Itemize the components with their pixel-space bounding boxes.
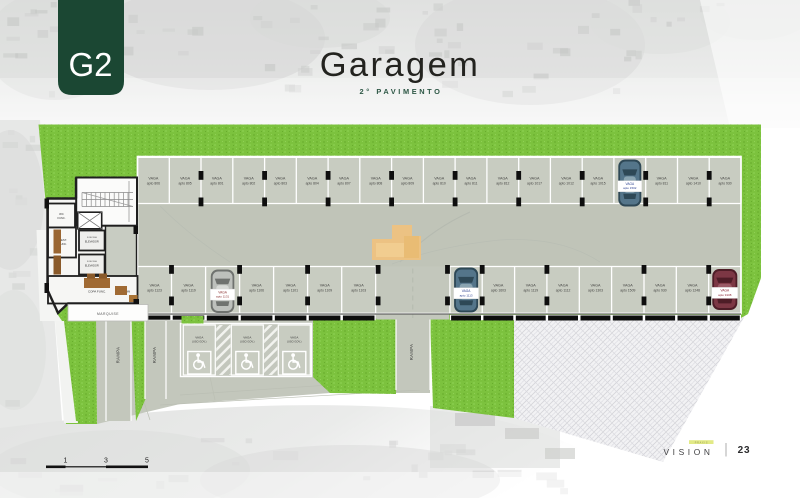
svg-text:RAMPA: RAMPA <box>152 347 157 364</box>
svg-text:apto 1012: apto 1012 <box>559 181 574 185</box>
svg-text:VAGA: VAGA <box>526 284 537 288</box>
svg-text:VAGA: VAGA <box>252 284 263 288</box>
svg-text:G2: G2 <box>68 46 112 83</box>
svg-text:apto 9108: apto 9108 <box>718 293 732 297</box>
svg-text:COPA FUNC.: COPA FUNC. <box>88 290 106 294</box>
svg-text:FUNC.: FUNC. <box>58 216 66 220</box>
svg-text:apto 1015: apto 1015 <box>591 181 606 185</box>
svg-text:apto 1103: apto 1103 <box>351 288 366 292</box>
svg-text:apto 801: apto 801 <box>210 181 223 185</box>
svg-text:VAGA: VAGA <box>623 284 634 288</box>
svg-text:5: 5 <box>145 458 149 465</box>
svg-text:VAGA: VAGA <box>591 284 602 288</box>
svg-text:VAGA: VAGA <box>275 177 286 181</box>
svg-text:VAGA: VAGA <box>212 177 223 181</box>
svg-text:3: 3 <box>104 458 108 465</box>
svg-text:apto 1106: apto 1106 <box>249 288 264 292</box>
svg-text:VAGA: VAGA <box>148 177 159 181</box>
svg-text:VAGA: VAGA <box>195 336 203 340</box>
svg-text:VAGA: VAGA <box>466 177 477 181</box>
svg-text:apto 804: apto 804 <box>306 181 319 185</box>
svg-text:VAGA: VAGA <box>307 177 318 181</box>
svg-text:apto 811: apto 811 <box>655 181 668 185</box>
svg-text:VAGA: VAGA <box>290 336 298 340</box>
svg-text:VAGA: VAGA <box>558 284 569 288</box>
svg-text:2° PAVIMENTO: 2° PAVIMENTO <box>359 87 442 96</box>
svg-text:apto 812: apto 812 <box>496 181 509 185</box>
svg-text:ELEVADOR: ELEVADOR <box>85 264 99 268</box>
svg-text:apto 1101: apto 1101 <box>283 288 298 292</box>
svg-text:VISION: VISION <box>664 447 714 457</box>
svg-text:VAGA: VAGA <box>530 177 541 181</box>
svg-text:apto 808: apto 808 <box>369 181 382 185</box>
svg-text:apto 1410: apto 1410 <box>686 181 701 185</box>
svg-text:apto 807: apto 807 <box>337 181 350 185</box>
svg-text:Garagem: Garagem <box>320 46 481 84</box>
svg-text:VAGA: VAGA <box>720 177 731 181</box>
svg-text:apto 1123: apto 1123 <box>147 288 162 292</box>
svg-text:SOB/CIMA: SOB/CIMA <box>87 236 97 239</box>
svg-text:MARQUISE: MARQUISE <box>97 312 119 316</box>
svg-text:VAGA: VAGA <box>180 177 191 181</box>
svg-text:apto 1119: apto 1119 <box>181 288 196 292</box>
svg-text:VAGA: VAGA <box>493 284 504 288</box>
svg-text:1: 1 <box>64 458 68 465</box>
svg-text:VAGA: VAGA <box>150 284 161 288</box>
svg-text:VAGA: VAGA <box>371 177 382 181</box>
svg-text:RAMPA: RAMPA <box>116 347 121 364</box>
svg-text:VAGA: VAGA <box>688 284 699 288</box>
svg-text:apto 805: apto 805 <box>178 181 191 185</box>
svg-text:apto 1112: apto 1112 <box>556 288 571 292</box>
svg-text:apto 1303: apto 1303 <box>588 288 603 292</box>
svg-text:VAGA: VAGA <box>655 284 666 288</box>
svg-text:apto 1248: apto 1248 <box>685 288 700 292</box>
svg-text:RAMPA: RAMPA <box>409 344 414 361</box>
svg-text:VAGA: VAGA <box>462 289 471 293</box>
svg-text:VAGA: VAGA <box>434 177 445 181</box>
svg-text:VAGA: VAGA <box>561 177 572 181</box>
svg-text:apto 806: apto 806 <box>147 181 160 185</box>
svg-text:VAGA: VAGA <box>657 177 668 181</box>
svg-text:VAGA: VAGA <box>498 177 509 181</box>
svg-text:VAGA: VAGA <box>354 284 365 288</box>
svg-text:VAGA: VAGA <box>688 177 699 181</box>
svg-text:VAGA: VAGA <box>320 284 331 288</box>
svg-text:apto 1109: apto 1109 <box>317 288 332 292</box>
svg-text:apto 811: apto 811 <box>465 181 478 185</box>
svg-text:apto 810: apto 810 <box>433 181 446 185</box>
svg-text:SOB/CIMA: SOB/CIMA <box>87 260 97 263</box>
svg-text:apto 802: apto 802 <box>242 181 255 185</box>
svg-text:VAGA: VAGA <box>403 177 414 181</box>
svg-text:apto 1119: apto 1119 <box>524 288 539 292</box>
svg-text:apto 930: apto 930 <box>653 288 666 292</box>
svg-text:apto 1502: apto 1502 <box>623 186 637 190</box>
svg-text:VAGA: VAGA <box>625 182 634 186</box>
svg-text:WC: WC <box>59 212 64 216</box>
svg-text:(USO GOV.): (USO GOV.) <box>287 340 301 344</box>
svg-text:VAGA: VAGA <box>593 177 604 181</box>
svg-text:apto 803: apto 803 <box>274 181 287 185</box>
svg-text:VAGA: VAGA <box>720 289 729 293</box>
svg-text:apto 1603: apto 1603 <box>491 288 506 292</box>
svg-text:apto 930: apto 930 <box>718 181 731 185</box>
svg-text:VAGA: VAGA <box>339 177 350 181</box>
svg-text:VAGA: VAGA <box>218 290 227 294</box>
svg-text:(USO GOV.): (USO GOV.) <box>192 340 206 344</box>
svg-text:VAGA: VAGA <box>244 177 255 181</box>
svg-text:(USO GOV.): (USO GOV.) <box>240 340 254 344</box>
svg-text:VAGA: VAGA <box>286 284 297 288</box>
svg-text:PRAXIS: PRAXIS <box>695 441 709 444</box>
svg-text:apto 1113: apto 1113 <box>460 293 473 297</box>
svg-text:apto 1131: apto 1131 <box>216 295 229 299</box>
svg-text:VAGA: VAGA <box>243 336 251 340</box>
svg-text:apto 809: apto 809 <box>401 181 414 185</box>
svg-text:23: 23 <box>738 445 751 456</box>
svg-text:apto 1017: apto 1017 <box>527 181 542 185</box>
svg-text:apto 1509: apto 1509 <box>620 288 635 292</box>
svg-text:VAGA: VAGA <box>184 284 195 288</box>
svg-text:ELEVADOR: ELEVADOR <box>85 240 99 244</box>
